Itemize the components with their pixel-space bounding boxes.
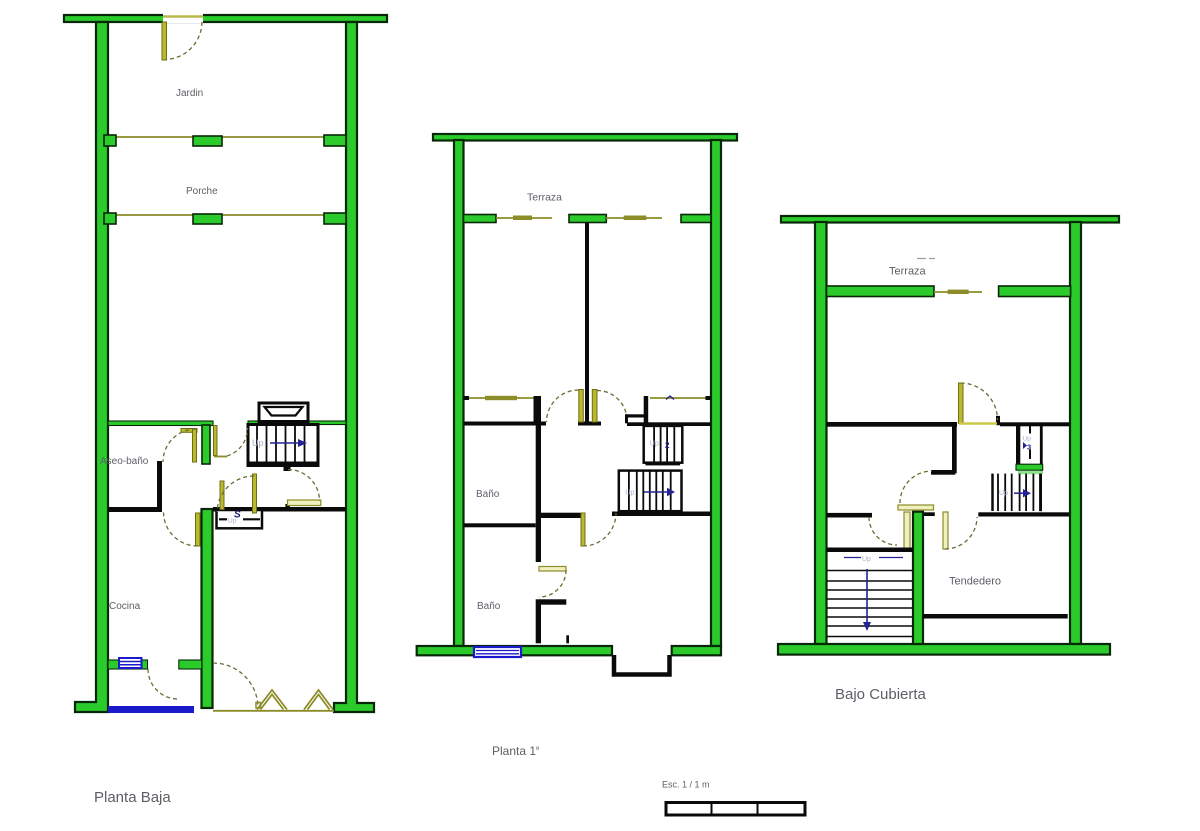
svg-text:Terraza: Terraza — [527, 192, 562, 204]
svg-text:Planta 1ª: Planta 1ª — [492, 744, 539, 758]
svg-text:3: 3 — [1027, 443, 1031, 452]
svg-text:Up: Up — [999, 490, 1008, 497]
svg-text:2: 2 — [665, 441, 670, 450]
svg-text:Up: Up — [625, 490, 634, 497]
svg-text:Baño: Baño — [476, 489, 500, 500]
svg-text:Terraza: Terraza — [889, 266, 927, 278]
svg-text:Up: Up — [1023, 436, 1032, 443]
svg-text:Bajo Cubierta: Bajo Cubierta — [835, 686, 927, 703]
svg-text:Esc. 1 / 1 m: Esc. 1 / 1 m — [662, 780, 710, 790]
svg-text:S: S — [234, 510, 241, 521]
svg-text:Cocina: Cocina — [109, 601, 141, 612]
svg-text:Planta Baja: Planta Baja — [94, 789, 171, 806]
svg-text:Aseo-baño: Aseo-baño — [100, 456, 149, 467]
svg-text:Baño: Baño — [477, 601, 501, 612]
svg-text:Jardin: Jardin — [176, 88, 203, 99]
svg-text:Porche: Porche — [186, 186, 218, 197]
svg-text:Up: Up — [650, 441, 659, 448]
svg-text:Up: Up — [862, 556, 871, 563]
svg-text:Up: Up — [252, 438, 264, 448]
svg-text:Tendedero: Tendedero — [949, 576, 1001, 588]
